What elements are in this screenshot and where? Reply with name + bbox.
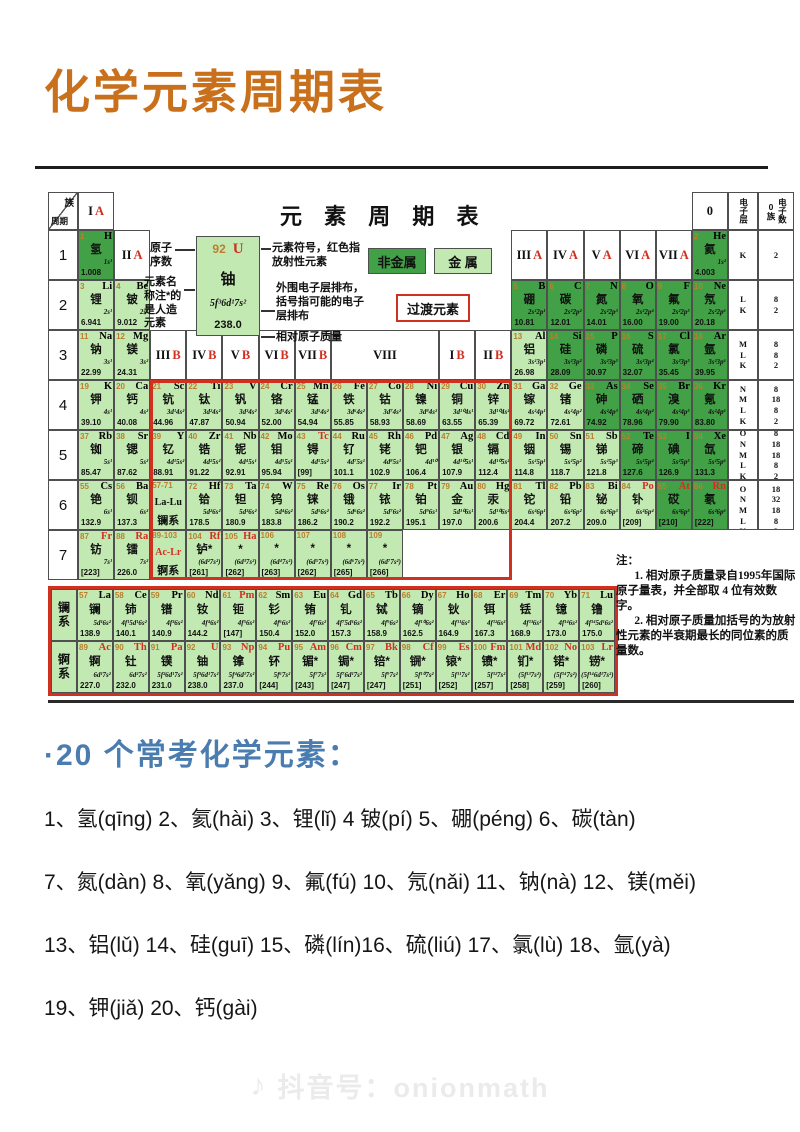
element-cell: 78Pt铂5d⁹6s¹195.1 (403, 480, 439, 530)
element-cell: 20Ca钙4s²40.08 (114, 380, 150, 430)
element-cell: 16S硫3s²3p⁴32.07 (620, 330, 656, 380)
element-cell: 63Eu铕4f⁷6s²152.0 (292, 589, 328, 641)
element-cell: 59Pr镨4f³6s²140.9 (149, 589, 185, 641)
element-range-cell: 57-71La-Lu镧系 (150, 480, 186, 530)
element-cell: 89Ac锕6d¹7s²227.0 (77, 641, 113, 693)
group-header: IA (78, 192, 114, 230)
shell-letters-cell: PONMLK (728, 480, 758, 530)
element-cell: 92U铀5f³6d¹7s²238.0 (185, 641, 221, 693)
element-cell: 17Cl氯3s²3p⁵35.45 (656, 330, 692, 380)
element-cell: 19K钾4s¹39.10 (78, 380, 114, 430)
shell-counts-cell: 2 (758, 230, 794, 280)
group-header: VIIA (656, 230, 692, 280)
corner-period-label: 周期 (51, 215, 68, 227)
actinide-series-label: 锕系 (51, 641, 77, 693)
element-cell: 12Mg镁3s²24.31 (114, 330, 150, 380)
legend-mass-label: 相对原子质量 (276, 331, 376, 345)
notes-title: 注： (616, 554, 796, 569)
element-cell: 11Na钠3s¹22.99 (78, 330, 114, 380)
element-cell: 29Cu铜3d¹⁰4s¹63.55 (439, 380, 475, 430)
notes-block: 注： 1. 相对原子质量录自1995年国际原子量表，并全部取 4 位有效数字。 … (616, 554, 796, 659)
period-label: 6 (48, 480, 78, 530)
shell-counts-cell: 81882 (758, 380, 794, 430)
element-cell: 1H氢1s¹1.008 (78, 230, 114, 280)
legend-config-note: 外围电子层排布，括号指可能的电子层排布 (276, 282, 370, 323)
legend-atomic-number-label: 原子序数 (148, 242, 172, 270)
legend-sample-top: 92 U (212, 241, 243, 258)
legend-connector-line (261, 336, 275, 338)
element-cell: 80Hg汞5d¹⁰6s²200.6 (475, 480, 511, 530)
element-cell: 100Fm镄*5f¹²7s²[257] (472, 641, 508, 693)
element-cell: 18Ar氩3s²3p⁶39.95 (692, 330, 728, 380)
list-line: 7、氮(dàn) 8、氧(yǎng) 9、氟(fú) 10、氖(nǎi) 11、… (44, 869, 766, 896)
list-line: 1、氢(qīng) 2、氦(hài) 3、锂(lǐ) 4 铍(pí) 5、硼(p… (44, 806, 766, 833)
element-cell: 90Th钍6d²7s²232.0 (113, 641, 149, 693)
notes-item: 1. 相对原子质量录自1995年国际原子量表，并全部取 4 位有效数字。 (616, 569, 796, 614)
element-cell: 9F氟2s²2p⁵19.00 (656, 280, 692, 330)
element-cell: 60Nd钕4f⁴6s²144.2 (185, 589, 221, 641)
element-cell: 10Ne氖2s²2p⁶20.18 (692, 280, 728, 330)
periodic-table-figure: 元 素 周 期 表 族 周期 电子层 0族 电子数 1234567IAIIAII… (48, 192, 794, 706)
group-header: IIA (114, 230, 150, 280)
element-cell: 65Tb铽4f⁹6s²158.9 (364, 589, 400, 641)
period-label: 2 (48, 280, 78, 330)
element-cell: 104Rf𬬻*(6d²7s²)[261] (186, 530, 222, 580)
element-cell: 106*(6d⁴7s²)[263] (259, 530, 295, 580)
element-cell: 58Ce铈4f¹5d¹6s²140.1 (113, 589, 149, 641)
period-label: 4 (48, 380, 78, 430)
element-cell: 3Li锂2s¹6.941 (78, 280, 114, 330)
legend-sample-number: 92 (212, 242, 225, 256)
shell-letters-cell: K (728, 230, 758, 280)
watermark-text: 抖音号：onionmath (278, 1066, 550, 1105)
element-cell: 61Pm钷4f⁵6s²[147] (220, 589, 256, 641)
element-cell: 86Rn氡6s²6p⁶[222] (692, 480, 728, 530)
element-cell: 69Tm铥4f¹³6s²168.9 (507, 589, 543, 641)
element-cell: 95Am镅*5f⁷7s²[243] (292, 641, 328, 693)
element-cell: 74W钨5d⁴6s²183.8 (259, 480, 295, 530)
element-cell: 27Co钴3d⁷4s²58.93 (367, 380, 403, 430)
element-cell: 62Sm钐4f⁶6s²150.4 (256, 589, 292, 641)
group-header: IIIA (511, 230, 547, 280)
shell-letters-cell: MLK (728, 330, 758, 380)
element-cell: 75Re铼5d⁵6s²186.2 (295, 480, 331, 530)
element-cell: 105Ha𨥟*(6d³7s²)[262] (222, 530, 258, 580)
element-cell: 54Xe氙5s²5p⁶131.3 (692, 430, 728, 480)
element-cell: 52Te碲5s²5p⁴127.6 (620, 430, 656, 480)
element-cell: 81Tl铊6s²6p¹204.4 (511, 480, 547, 530)
list-line: 13、铝(lǔ) 14、硅(guī) 15、磷(lín)16、硫(liú) 17… (44, 932, 766, 959)
element-cell: 109*(6d⁷7s²)[266] (367, 530, 403, 580)
element-cell: 72Hf铪5d²6s²178.5 (186, 480, 222, 530)
group-header: IB (439, 330, 475, 380)
group-header: IVB (186, 330, 222, 380)
f-block-grid: 镧系锕系57La镧5d¹6s²138.958Ce铈4f¹5d¹6s²140.15… (48, 586, 618, 696)
element-cell: 98Cf锎*5f¹⁰7s²[251] (400, 641, 436, 693)
group-header: VIA (620, 230, 656, 280)
element-cell: 45Rh铑4d⁸5s¹102.9 (367, 430, 403, 480)
legend-connector-line (261, 248, 271, 250)
shell-counts-cell: 818321882 (758, 480, 794, 530)
lanthanide-series-label: 镧系 (51, 589, 77, 641)
notes-item: 2. 相对原子质量加括号的为放射性元素的半衰期最长的同位素的质量数。 (616, 614, 796, 659)
group-header: IIIB (150, 330, 186, 380)
element-cell: 55Cs铯6s¹132.9 (78, 480, 114, 530)
element-range-cell: 89-103Ac-Lr锕系 (150, 530, 186, 580)
element-cell: 108*(6d⁶7s²)[265] (331, 530, 367, 580)
legend-connector-line (175, 249, 195, 251)
legend-nonmetal-box: 非金属 (368, 248, 426, 274)
group-header: 0 (692, 192, 728, 230)
element-cell: 46Pd钯4d¹⁰106.4 (403, 430, 439, 480)
page-title: 化学元素周期表 (44, 56, 387, 122)
element-cell: 6C碳2s²2p²12.01 (547, 280, 583, 330)
group-header: VA (584, 230, 620, 280)
element-cell: 107*(6d⁵7s²)[262] (295, 530, 331, 580)
legend-metal-box: 金 属 (434, 248, 492, 274)
element-cell: 42Mo钼4d⁵5s¹95.94 (259, 430, 295, 480)
group-header: IVA (547, 230, 583, 280)
element-cell: 23V钒3d³4s²50.94 (222, 380, 258, 430)
element-cell: 44Ru钌4d⁷5s¹101.1 (331, 430, 367, 480)
element-cell: 79Au金5d¹⁰6s¹197.0 (439, 480, 475, 530)
element-cell: 48Cd镉4d¹⁰5s²112.4 (475, 430, 511, 480)
legend-symbol-note: 元素符号，红色指放射性元素 (272, 242, 368, 270)
legend-connector-line (261, 310, 275, 312)
element-cell: 103Lr铹*(5f¹⁴6d¹7s²)[260] (579, 641, 615, 693)
element-cell: 34Se硒4s²4p⁴78.96 (620, 380, 656, 430)
element-list: 1、氢(qīng) 2、氦(hài) 3、锂(lǐ) 4 铍(pí) 5、硼(p… (44, 806, 766, 1058)
element-cell: 36Kr氪4s²4p⁶83.80 (692, 380, 728, 430)
legend-transition-box: 过渡元素 (396, 294, 470, 322)
element-cell: 94Pu钚5f⁶7s²[244] (256, 641, 292, 693)
element-cell: 5B硼2s²2p¹10.81 (511, 280, 547, 330)
element-cell: 15P磷3s²3p³30.97 (584, 330, 620, 380)
element-cell: 87Fr钫7s¹[223] (78, 530, 114, 580)
legend-sample-mass: 238.0 (214, 319, 242, 331)
element-cell: 83Bi铋6s²6p³209.0 (584, 480, 620, 530)
element-cell: 22Ti钛3d²4s²47.87 (186, 380, 222, 430)
element-cell: 30Zn锌3d¹⁰4s²65.39 (475, 380, 511, 430)
element-cell: 101Md钔*(5f¹³7s²)[258] (507, 641, 543, 693)
group0-electron-header: 0族 电子数 (758, 192, 794, 230)
element-cell: 96Cm锔*5f⁷6d¹7s²[247] (328, 641, 364, 693)
element-cell: 66Dy镝4f¹⁰6s²162.5 (400, 589, 436, 641)
divider-rule (35, 166, 768, 169)
list-line: 19、钾(jiǎ) 20、钙(gài) (44, 995, 766, 1022)
element-cell: 13Al铝3s²3p¹26.98 (511, 330, 547, 380)
period-label: 1 (48, 230, 78, 280)
element-cell: 28Ni镍3d⁸4s²58.69 (403, 380, 439, 430)
group-header: VB (222, 330, 258, 380)
element-cell: 50Sn锡5s²5p²118.7 (547, 430, 583, 480)
corner-cell: 族 周期 (48, 192, 78, 230)
element-cell: 82Pb铅6s²6p²207.2 (547, 480, 583, 530)
electron-shell-header: 电子层 (728, 192, 758, 230)
element-cell: 49In铟5s²5p¹114.8 (511, 430, 547, 480)
figure-bottom-rule (48, 700, 794, 703)
element-cell: 33As砷4s²4p³74.92 (584, 380, 620, 430)
corner-group-label: 族 (64, 195, 74, 209)
element-cell: 2He氦1s²4.003 (692, 230, 728, 280)
element-cell: 88Ra镭7s²226.0 (114, 530, 150, 580)
element-cell: 56Ba钡6s²137.3 (114, 480, 150, 530)
element-cell: 97Bk锫*5f⁹7s²[247] (364, 641, 400, 693)
element-cell: 84Po钋6s²6p⁴[209] (620, 480, 656, 530)
element-cell: 7N氮2s²2p³14.01 (584, 280, 620, 330)
element-cell: 25Mn锰3d⁵4s²54.94 (295, 380, 331, 430)
element-cell: 39Y钇4d¹5s²88.91 (150, 430, 186, 480)
watermark: ♪ 抖音号：onionmath (0, 1066, 800, 1105)
element-cell: 24Cr铬3d⁵4s¹52.00 (259, 380, 295, 430)
element-cell: 51Sb锑5s²5p³121.8 (584, 430, 620, 480)
legend-sample-name: 铀 (220, 268, 235, 289)
music-note-icon: ♪ (251, 1069, 268, 1103)
element-cell: 73Ta钽5d³6s²180.9 (222, 480, 258, 530)
element-cell: 38Sr锶5s²87.62 (114, 430, 150, 480)
shell-counts-cell: 882 (758, 330, 794, 380)
shell-counts-cell: 8181882 (758, 430, 794, 480)
element-cell: 102No锘*(5f¹⁴7s²)[259] (543, 641, 579, 693)
section-heading: ·20 个常考化学元素： (44, 730, 360, 774)
element-cell: 71Lu镥4f¹⁴5d¹6s²175.0 (579, 589, 615, 641)
element-cell: 26Fe铁3d⁶4s²55.85 (331, 380, 367, 430)
element-cell: 37Rb铷5s¹85.47 (78, 430, 114, 480)
group0-header-left: 0族 (766, 202, 775, 221)
legend-sample-symbol: U (233, 241, 244, 258)
element-cell: 8O氧2s²2p⁴16.00 (620, 280, 656, 330)
period-label: 7 (48, 530, 78, 580)
shell-letters-cell: ONMLK (728, 430, 758, 480)
element-cell: 21Sc钪3d¹4s²44.96 (150, 380, 186, 430)
legend-sample-element: 92 U 铀 5f³6d¹7s² 238.0 (196, 236, 260, 336)
element-cell: 53I碘5s²5p⁵126.9 (656, 430, 692, 480)
element-cell: 35Br溴4s²4p⁵79.90 (656, 380, 692, 430)
element-cell: 85At砹6s²6p⁵[210] (656, 480, 692, 530)
element-cell: 93Np镎5f⁴6d¹7s²237.0 (220, 641, 256, 693)
element-cell: 43Tc锝4d⁵5s²[99] (295, 430, 331, 480)
element-cell: 40Zr锆4d²5s²91.22 (186, 430, 222, 480)
element-cell: 14Si硅3s²3p²28.09 (547, 330, 583, 380)
electron-shell-header-text: 电子层 (738, 198, 747, 224)
group-header: IIB (475, 330, 511, 380)
element-cell: 32Ge锗4s²4p²72.61 (547, 380, 583, 430)
period-label: 5 (48, 430, 78, 480)
element-cell: 76Os锇5d⁶6s²190.2 (331, 480, 367, 530)
element-cell: 91Pa镤5f²6d¹7s²231.0 (149, 641, 185, 693)
shell-letters-cell: LK (728, 280, 758, 330)
element-cell: 68Er铒4f¹²6s²167.3 (472, 589, 508, 641)
period-label: 3 (48, 330, 78, 380)
element-cell: 64Gd钆4f⁷5d¹6s²157.3 (328, 589, 364, 641)
shell-counts-cell: 82 (758, 280, 794, 330)
shell-letters-cell: NMLK (728, 380, 758, 430)
legend-name-note: 元素名称注*的是人造元素 (144, 276, 182, 331)
legend-connector-line (184, 289, 195, 291)
element-cell: 77Ir铱5d⁷6s²192.2 (367, 480, 403, 530)
element-cell: 47Ag银4d¹⁰5s¹107.9 (439, 430, 475, 480)
element-cell: 70Yb镱4f¹⁴6s²173.0 (543, 589, 579, 641)
group0-header-right: 电子数 (777, 198, 786, 224)
element-cell: 99Es锿*5f¹¹7s²[252] (436, 641, 472, 693)
legend-sample-config: 5f³6d¹7s² (210, 298, 246, 309)
element-cell: 41Nb铌4d⁴5s¹92.91 (222, 430, 258, 480)
element-cell: 57La镧5d¹6s²138.9 (77, 589, 113, 641)
element-cell: 31Ga镓4s²4p¹69.72 (511, 380, 547, 430)
element-cell: 67Ho钬4f¹¹6s²164.9 (436, 589, 472, 641)
